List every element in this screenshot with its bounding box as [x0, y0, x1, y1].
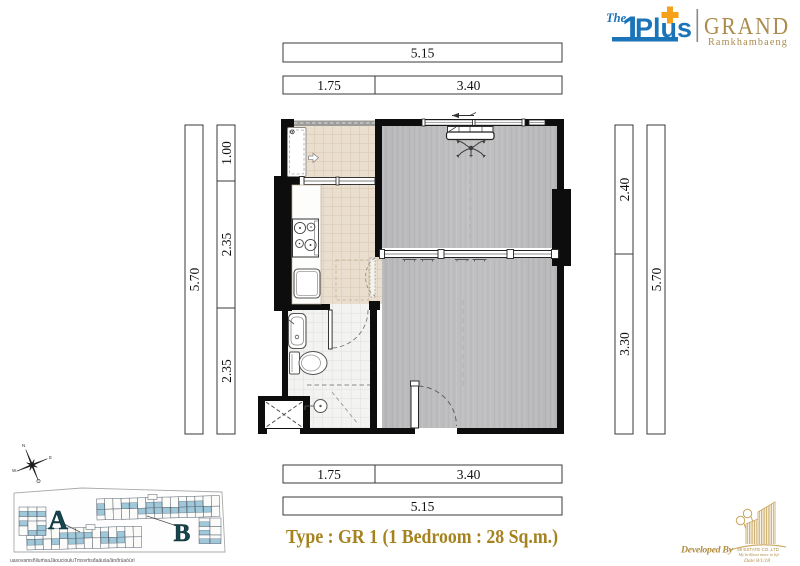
svg-text:1.75: 1.75 — [317, 78, 341, 93]
svg-text:5.15: 5.15 — [411, 45, 435, 60]
svg-text:E: E — [49, 455, 52, 460]
svg-text:2.35: 2.35 — [219, 359, 234, 383]
svg-text:Date 8/1/18: Date 8/1/18 — [743, 558, 770, 564]
svg-text:N: N — [22, 443, 25, 448]
svg-text:A: A — [48, 505, 68, 535]
svg-text:5.70: 5.70 — [187, 267, 202, 291]
svg-text:5.70: 5.70 — [649, 267, 664, 291]
svg-text:uasovamsñiluḿsaJāouciouluTm: uasovamsñiluḿsaJāouciouluTmsvḿsd́aā… — [10, 558, 135, 564]
svg-text:W: W — [12, 468, 17, 473]
svg-text:B: B — [174, 520, 191, 547]
svg-text:2.40: 2.40 — [617, 177, 632, 201]
svg-text:My brilliant move to life: My brilliant move to life — [738, 552, 780, 557]
svg-text:1.75: 1.75 — [317, 467, 341, 482]
svg-text:Developed By: Developed By — [680, 545, 734, 556]
svg-text:3.30: 3.30 — [617, 332, 632, 356]
svg-text:3.40: 3.40 — [457, 467, 481, 482]
svg-text:Type : GR 1 (1 Bedroom : 28 Sq: Type : GR 1 (1 Bedroom : 28 Sq.m.) — [286, 526, 558, 548]
svg-text:Ramkhambaeng: Ramkhambaeng — [708, 37, 788, 48]
svg-text:1.00: 1.00 — [219, 141, 234, 165]
svg-text:2.35: 2.35 — [219, 232, 234, 256]
svg-text:5.15: 5.15 — [411, 499, 435, 514]
svg-text:3.40: 3.40 — [457, 78, 481, 93]
